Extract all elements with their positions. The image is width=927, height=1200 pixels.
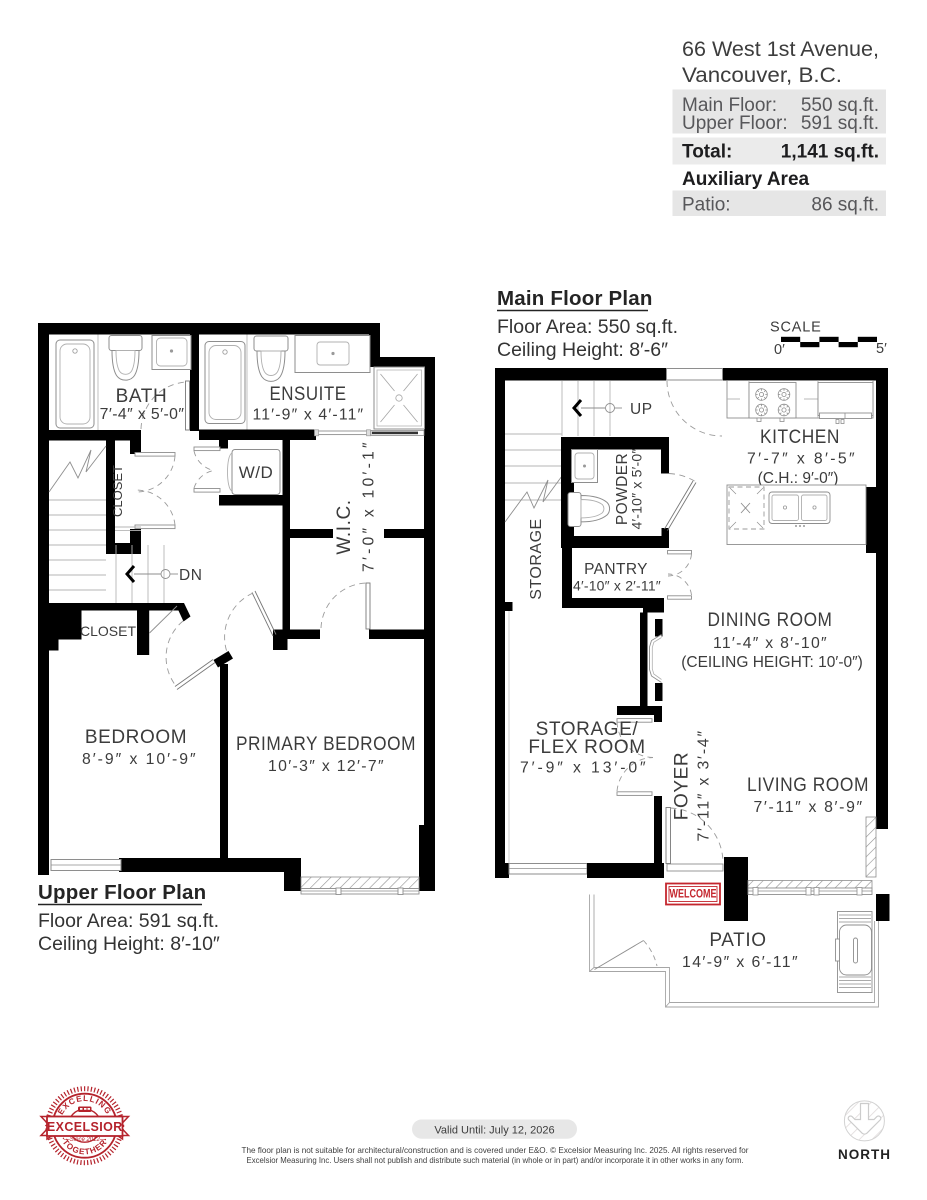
svg-text:(CEILING HEIGHT: 10′-0″): (CEILING HEIGHT: 10′-0″) [681,654,863,671]
svg-text:591 sq.ft.: 591 sq.ft. [801,113,879,134]
svg-text:DINING ROOM: DINING ROOM [708,610,833,631]
svg-text:11′-4″ x 8′-10″: 11′-4″ x 8′-10″ [713,635,827,652]
svg-text:PATIO: PATIO [709,930,766,951]
svg-text:4′-10″ x 5′-0″: 4′-10″ x 5′-0″ [629,449,645,530]
svg-text:Ceiling Height: 8′-10″: Ceiling Height: 8′-10″ [38,933,220,955]
svg-text:7′-4″ x 5′-0″: 7′-4″ x 5′-0″ [100,406,185,423]
svg-text:Vancouver, B.C.: Vancouver, B.C. [682,64,842,87]
svg-text:W.I.C.: W.I.C. [334,499,355,554]
svg-text:7′-9″ x 13′-0″: 7′-9″ x 13′-0″ [520,760,646,777]
svg-text:Auxiliary Area: Auxiliary Area [682,169,810,190]
svg-text:UP: UP [630,401,653,418]
svg-text:NORTH: NORTH [838,1147,891,1162]
svg-text:ENSUITE: ENSUITE [270,384,347,405]
svg-text:(C.H.: 9′-0″): (C.H.: 9′-0″) [758,470,839,487]
svg-text:LIVING ROOM: LIVING ROOM [747,775,869,796]
svg-text:STORAGE: STORAGE [528,518,545,599]
svg-text:EXCELSIOR: EXCELSIOR [47,1120,123,1134]
svg-text:10′-3″ x 12′-7″: 10′-3″ x 12′-7″ [268,758,384,775]
svg-text:KITCHEN: KITCHEN [760,427,840,448]
svg-text:11′-9″ x 4′-11″: 11′-9″ x 4′-11″ [253,407,364,424]
svg-text:Floor Area: 591 sq.ft.: Floor Area: 591 sq.ft. [38,910,219,932]
svg-text:BEDROOM: BEDROOM [85,727,187,748]
svg-text:W/D: W/D [239,463,274,482]
svg-text:Excelsior Measuring Inc. Users: Excelsior Measuring Inc. Users shall not… [247,1155,744,1165]
svg-text:Main Floor Plan: Main Floor Plan [497,287,653,310]
svg-text:SCALE: SCALE [770,320,822,336]
svg-text:7′-0″ x 10′-1″: 7′-0″ x 10′-1″ [361,442,378,572]
svg-text:Upper Floor:: Upper Floor: [682,113,788,134]
svg-text:Valid Until: July 12, 2026: Valid Until: July 12, 2026 [434,1125,554,1137]
svg-text:Floor Area: 550 sq.ft.: Floor Area: 550 sq.ft. [497,316,678,338]
svg-text:FOYER: FOYER [672,752,693,820]
svg-text:0′: 0′ [774,342,785,358]
svg-text:5′: 5′ [876,341,887,357]
svg-text:The floor plan is not suitable: The floor plan is not suitable for archi… [242,1145,749,1155]
svg-text:Ceiling Height: 8′-6″: Ceiling Height: 8′-6″ [497,339,668,361]
svg-text:FLEX ROOM: FLEX ROOM [528,737,645,758]
svg-text:Upper Floor Plan: Upper Floor Plan [38,881,206,904]
svg-text:CLOSET: CLOSET [110,465,125,517]
svg-text:DN: DN [179,567,202,584]
svg-text:7′-11″ x 8′-9″: 7′-11″ x 8′-9″ [754,799,863,816]
svg-text:7′-11″ x 3′-4″: 7′-11″ x 3′-4″ [696,731,713,842]
svg-text:86 sq.ft.: 86 sq.ft. [811,195,879,216]
svg-text:WELCOME: WELCOME [670,889,717,901]
svg-text:4′-10″ x 2′-11″: 4′-10″ x 2′-11″ [573,578,661,594]
svg-text:Total:: Total: [682,142,732,163]
svg-text:1,141 sq.ft.: 1,141 sq.ft. [781,142,879,163]
svg-text:CLOSET: CLOSET [80,623,136,639]
svg-text:8′-9″ x 10′-9″: 8′-9″ x 10′-9″ [82,751,196,768]
svg-text:—Since 2012—: —Since 2012— [63,1137,107,1143]
svg-text:PANTRY: PANTRY [584,561,648,578]
svg-text:66 West 1st Avenue,: 66 West 1st Avenue, [682,38,879,61]
svg-text:PRIMARY BEDROOM: PRIMARY BEDROOM [236,734,416,755]
svg-text:7′-7″ x 8′-5″: 7′-7″ x 8′-5″ [747,451,855,468]
svg-text:Patio:: Patio: [682,195,731,216]
svg-text:BATH: BATH [116,386,168,407]
svg-text:14′-9″ x 6′-11″: 14′-9″ x 6′-11″ [682,954,798,971]
